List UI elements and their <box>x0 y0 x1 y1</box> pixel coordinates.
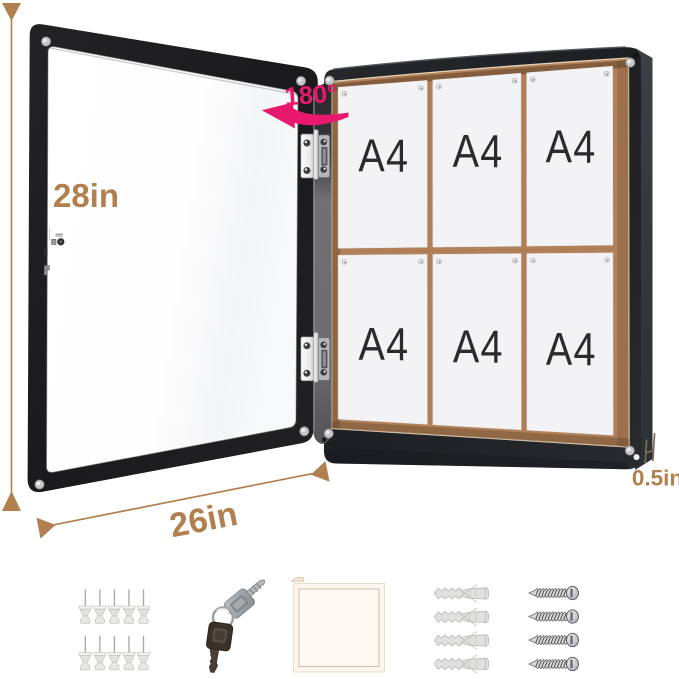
svg-text:28in: 28in <box>53 177 119 214</box>
svg-text:A4: A4 <box>453 321 504 373</box>
svg-text:0.5in: 0.5in <box>632 466 679 491</box>
svg-text:A4: A4 <box>546 324 597 376</box>
svg-text:A4: A4 <box>358 130 409 182</box>
svg-text:A4: A4 <box>453 126 504 178</box>
svg-text:A4: A4 <box>358 319 409 371</box>
svg-text:A4: A4 <box>546 121 597 173</box>
svg-text:26in: 26in <box>167 495 241 545</box>
